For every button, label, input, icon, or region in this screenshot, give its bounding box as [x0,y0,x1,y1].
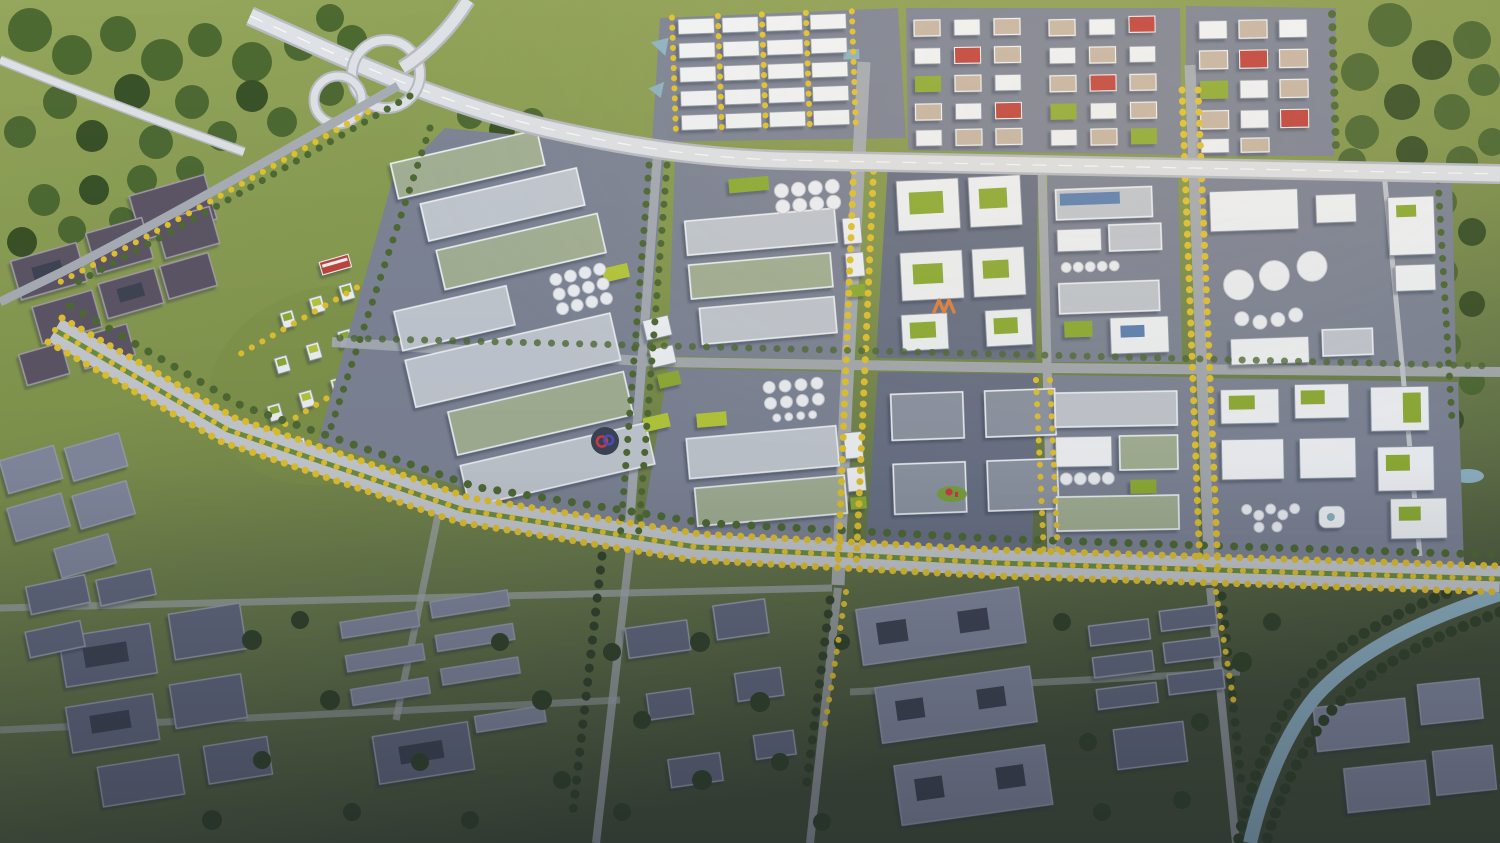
aerial-render: Aerial 3D masterplan rendering of a plan… [0,0,1500,843]
dusk-vignette-overlay [0,0,1500,843]
aerial-scene: Aerial 3D masterplan rendering of a plan… [0,0,1500,843]
